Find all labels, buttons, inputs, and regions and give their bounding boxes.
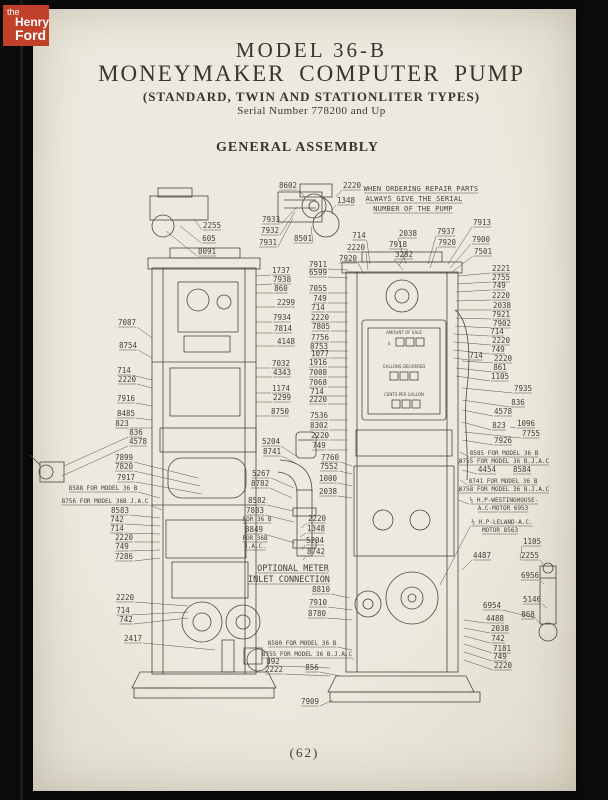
leader-line — [320, 700, 333, 706]
part-label: 1077 — [311, 349, 329, 358]
part-label: 8585 FOR MODEL 36 B — [470, 450, 539, 457]
leader-line — [137, 384, 152, 388]
part-label: 714 — [490, 327, 504, 336]
part-label: 8756 FOR MODEL 36B J.A.C — [62, 498, 149, 505]
part-label: 7805 — [312, 322, 330, 331]
part-label: 8091 — [198, 247, 216, 256]
leader-line — [320, 672, 340, 676]
part-label: 2222 — [265, 665, 283, 674]
part-label: 749 — [491, 345, 505, 354]
part-label: A.C-MOTOR 6953 — [478, 505, 529, 512]
leader-line — [462, 361, 493, 363]
pump-face-text: CENTS PER GALLON — [384, 392, 424, 397]
leader-line — [454, 358, 468, 360]
leader-line — [540, 580, 544, 584]
part-label: 8742 — [307, 547, 325, 556]
leader-line — [456, 376, 490, 381]
part-label: 7937 — [437, 227, 455, 236]
part-label: 8755 FOR MODEL 36 B.J.A.C — [459, 458, 550, 465]
leader-line — [464, 644, 492, 653]
leader-line — [458, 273, 491, 276]
part-label: OPTIONAL METER — [257, 564, 330, 574]
labels-layer: WHEN ORDERING REPAIR PARTSALWAYS GIVE TH… — [62, 181, 550, 706]
part-label: 7934 — [273, 313, 292, 322]
part-label: 836 — [511, 398, 525, 407]
leader-line — [542, 604, 547, 608]
part-label: 7068 — [309, 378, 328, 387]
leader-line — [194, 219, 202, 230]
part-label: 7931 — [259, 238, 277, 247]
leader-line — [338, 496, 352, 498]
leader-line — [366, 252, 368, 270]
pump-face-text: AMOUNT OF SALE — [386, 330, 422, 335]
leader-line — [284, 674, 330, 676]
part-label: 861 — [493, 363, 507, 372]
part-label: 7918 — [389, 240, 408, 249]
part-label: 714 — [117, 366, 131, 375]
part-label: 714 — [352, 231, 366, 240]
part-label: 2299 — [273, 393, 291, 402]
page-number: (62) — [33, 745, 576, 761]
part-label: 4578 — [129, 437, 148, 446]
leader-line — [454, 334, 489, 336]
leader-line — [180, 226, 201, 243]
part-label: 5146 — [523, 595, 542, 604]
part-label: INLET CONNECTION — [248, 575, 330, 585]
leader-line — [270, 488, 292, 498]
part-label: 8588 FOR MODEL 36 B — [69, 485, 138, 492]
part-label: 749 — [312, 441, 326, 450]
part-label: 823 — [115, 419, 129, 428]
part-label: 856 — [305, 663, 319, 672]
part-label: 2220 — [311, 313, 330, 322]
part-label: 7935 — [514, 384, 532, 393]
leader-line — [338, 483, 352, 486]
leader-line — [134, 618, 188, 624]
part-label: 8584 — [513, 465, 532, 474]
leader-line — [331, 594, 350, 598]
part-label: FOR 36 B — [243, 516, 272, 523]
leader-line — [456, 290, 491, 292]
part-label: 1174 — [272, 384, 291, 393]
part-label: 749 — [493, 652, 507, 661]
part-label: 7900 — [472, 235, 491, 244]
leader-line — [267, 505, 293, 511]
part-label: 8849 — [245, 525, 263, 534]
leader-line — [428, 236, 436, 264]
part-label: 2220 — [343, 181, 362, 190]
leader-line — [136, 418, 152, 420]
part-label: 7756 — [311, 333, 330, 342]
leader-line — [134, 558, 160, 561]
part-label: 7916 — [117, 394, 136, 403]
part-label: NUMBER OF THE PUMP — [373, 205, 452, 213]
leader-line — [337, 647, 352, 650]
leader-line — [462, 400, 510, 407]
part-label: 8782 — [251, 479, 269, 488]
leader-line — [440, 526, 470, 585]
part-label: 6954 — [483, 601, 502, 610]
part-label: 1096 — [517, 419, 536, 428]
leader-line — [135, 602, 188, 606]
right-cylinder-drawing — [539, 563, 557, 641]
leader-line — [328, 269, 348, 270]
leader-line — [134, 462, 198, 478]
part-label: WHEN ORDERING REPAIR PARTS — [364, 185, 479, 193]
leader-line — [462, 470, 477, 474]
part-label: 7501 — [474, 247, 492, 256]
part-label: 7910 — [309, 598, 328, 607]
part-label: 2299 — [277, 298, 295, 307]
leader-line — [462, 388, 513, 393]
part-label: 7909 — [301, 697, 319, 706]
leader-line — [464, 620, 485, 623]
leader-line — [328, 277, 348, 278]
henry-ford-logo: the Henry Ford — [3, 5, 49, 46]
part-label: 7055 — [309, 284, 327, 293]
leader-line — [430, 247, 437, 268]
part-label: 2220 — [116, 593, 135, 602]
part-label: 5204 — [262, 437, 281, 446]
part-label: 742 — [491, 634, 505, 643]
part-label: 2220 — [308, 514, 327, 523]
top-components-drawing — [150, 184, 339, 237]
leader-line — [454, 342, 491, 345]
leader-line — [264, 534, 295, 543]
leader-line — [281, 446, 296, 456]
leader-line — [464, 652, 492, 661]
leader-line — [143, 643, 215, 650]
leader-line — [136, 482, 202, 494]
leader-line — [137, 327, 152, 338]
part-label: 2220 — [311, 431, 330, 440]
part-label: 714 — [110, 524, 124, 533]
part-label: 7913 — [473, 218, 491, 227]
part-label: 1000 — [319, 474, 338, 483]
part-label: FOR 36B — [242, 535, 268, 542]
leader-line — [303, 556, 306, 560]
part-label: 7899 — [115, 453, 133, 462]
leader-line — [328, 607, 352, 610]
photo-backdrop: the Henry Ford MODEL 36-B MONEYMAKER COM… — [0, 0, 608, 800]
leader-line — [458, 500, 469, 504]
leader-line — [464, 628, 490, 633]
leader-line — [462, 560, 472, 570]
part-label: 2038 — [493, 301, 512, 310]
part-label: 7938 — [273, 275, 292, 284]
leader-line — [282, 456, 297, 464]
part-label: 8758 FOR MODEL 36 B.J.A.C — [459, 486, 550, 493]
part-label: 2220 — [118, 375, 137, 384]
part-label: 8810 — [312, 585, 331, 594]
part-label: 8485 — [117, 409, 135, 418]
part-label: 2221 — [492, 264, 510, 273]
part-label: 860 — [274, 284, 288, 293]
part-label: 8780 — [308, 609, 327, 618]
part-label: MOTOR 8563 — [482, 527, 519, 534]
part-label: 5204 — [306, 536, 325, 545]
part-label: 7920 — [438, 238, 457, 247]
part-label: 7820 — [115, 462, 134, 471]
part-label: 2220 — [492, 291, 511, 300]
leader-line — [452, 256, 473, 272]
part-label: 2255 — [203, 221, 221, 230]
part-label: 2220 — [494, 661, 513, 670]
leader-line — [457, 282, 491, 284]
leader-line — [166, 231, 197, 256]
part-label: 605 — [202, 234, 216, 243]
part-label: 1105 — [523, 537, 541, 546]
leader-line — [138, 350, 152, 358]
part-label: 1916 — [309, 358, 328, 367]
part-label: 7755 — [522, 429, 540, 438]
leader-line — [136, 403, 152, 406]
part-label: 4488 — [486, 614, 505, 623]
part-label: 2220 — [492, 336, 511, 345]
part-label: 7933 — [262, 215, 280, 224]
part-label: 5267 — [252, 469, 270, 478]
leader-line — [464, 660, 493, 670]
part-label: 749 — [115, 542, 129, 551]
leader-line — [540, 560, 545, 566]
leader-line — [256, 275, 271, 276]
part-label: 8583 — [111, 506, 129, 515]
leader-line — [462, 410, 493, 416]
part-label: 2220 — [494, 354, 513, 363]
right-pump-drawing — [328, 252, 480, 702]
part-label: 4148 — [277, 337, 296, 346]
part-label: 8741 — [263, 447, 281, 456]
pump-face-text: $ — [388, 341, 391, 346]
part-label: 1348 — [307, 524, 326, 533]
leader-line — [302, 545, 305, 550]
leader-line — [455, 326, 492, 328]
part-label: 8302 — [310, 421, 328, 430]
part-label: 749 — [313, 294, 327, 303]
part-label: 4578 — [494, 407, 513, 416]
part-label: 8754 — [119, 341, 138, 350]
left-bracket-drawing — [30, 455, 64, 482]
part-label: 823 — [492, 421, 506, 430]
part-label: 836 — [129, 428, 143, 437]
leader-line — [131, 612, 188, 615]
part-label: 4487 — [473, 551, 491, 560]
part-label: 7917 — [117, 473, 135, 482]
leader-line — [339, 471, 352, 474]
part-label: 7921 — [492, 310, 510, 319]
part-label: 2255 — [521, 551, 539, 560]
part-label: ALWAYS GIVE THE SERIAL — [365, 195, 462, 203]
part-label: 7926 — [494, 436, 513, 445]
part-label: J.A.C. — [244, 543, 266, 550]
leader-line — [464, 636, 490, 643]
leader-line — [510, 427, 516, 428]
part-label: 2220 — [347, 243, 366, 252]
part-label: 1105 — [491, 372, 509, 381]
part-label: ⅕ H.P-WESTINGHOUSE- — [470, 497, 539, 504]
leader-line — [327, 618, 352, 620]
leader-line — [271, 478, 294, 488]
part-label: 7286 — [115, 552, 134, 561]
part-label: 8750 — [271, 407, 290, 416]
part-label: 868 — [521, 610, 535, 619]
leader-line — [256, 284, 272, 285]
leader-line — [134, 471, 200, 486]
part-label: 2417 — [124, 634, 142, 643]
leader-line — [456, 300, 491, 301]
part-label: 2038 — [491, 624, 510, 633]
leader-line — [130, 550, 160, 551]
leader-line — [536, 619, 543, 626]
part-label: 7087 — [118, 318, 136, 327]
part-label: 2220 — [309, 395, 328, 404]
leader-line — [456, 318, 491, 319]
part-label: 6599 — [309, 268, 327, 277]
part-label: 7552 — [320, 462, 338, 471]
part-label: 1737 — [272, 266, 290, 275]
part-label: 8501 — [294, 234, 312, 243]
part-label: 714 — [311, 303, 325, 312]
part-label: 7920 — [339, 254, 358, 263]
part-label: 714 — [469, 351, 483, 360]
part-label: 8602 — [279, 181, 297, 190]
part-label: 8741 FOR MODEL 36 B — [469, 478, 538, 485]
part-label: 8582 — [248, 496, 266, 505]
part-label: 742 — [110, 515, 124, 524]
part-label: 4454 — [478, 465, 497, 474]
leader-line — [456, 368, 492, 372]
leader-line — [298, 190, 305, 197]
part-label: 7760 — [321, 453, 340, 462]
part-label: 3282 — [395, 250, 413, 259]
leader-line — [125, 524, 160, 526]
part-label: 2038 — [399, 229, 418, 238]
part-label: ⅕ H.P-LELAND-A.C. — [471, 519, 532, 526]
part-label: 742 — [119, 615, 133, 624]
part-label: 4343 — [273, 368, 291, 377]
leader-line — [149, 505, 162, 510]
part-label: 1348 — [337, 196, 356, 205]
part-label: 7536 — [310, 411, 329, 420]
part-label: 8580 FOR MODEL 36 B — [268, 640, 337, 647]
part-label: 7932 — [261, 226, 279, 235]
leader-line — [464, 432, 521, 438]
part-label: 2220 — [115, 533, 134, 542]
pump-face-text: GALLONS DELIVERED — [383, 364, 426, 369]
leader-line — [130, 515, 160, 518]
part-label: 7814 — [274, 324, 293, 333]
part-label: 7032 — [272, 359, 290, 368]
leader-line — [460, 480, 468, 485]
logo-text-ford: Ford — [15, 28, 46, 42]
assembly-diagram: WHEN ORDERING REPAIR PARTSALWAYS GIVE TH… — [0, 0, 608, 800]
part-label: 6956 — [521, 571, 540, 580]
part-label: 7008 — [309, 368, 328, 377]
leader-line — [280, 212, 295, 235]
part-label: 7883 — [246, 506, 264, 515]
part-label: 2038 — [319, 487, 338, 496]
part-label: 714 — [116, 606, 130, 615]
part-label: 749 — [492, 281, 506, 290]
